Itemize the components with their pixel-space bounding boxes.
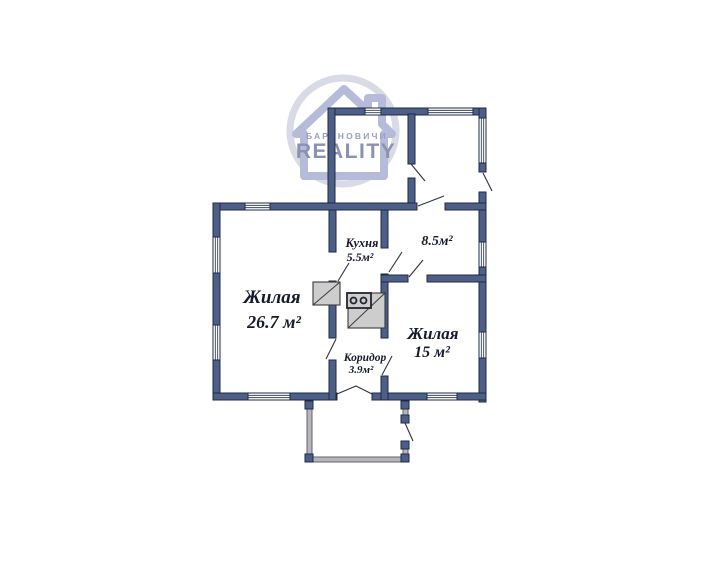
room-kitchen-area: 5.5м² (347, 250, 374, 264)
wall-segment (329, 210, 336, 252)
wall-segment (213, 203, 220, 400)
window (479, 332, 486, 358)
wall-segment (213, 203, 417, 210)
porch-wall-block (305, 401, 313, 409)
burner-icon (361, 298, 367, 304)
wall-segment (381, 376, 388, 400)
room-corridor-name: Коридор (343, 352, 387, 364)
window (428, 108, 473, 115)
window (213, 325, 220, 360)
kitchen-label-leader (338, 263, 349, 281)
door-swing-line (483, 173, 492, 191)
room-living2-name: Жилая (406, 324, 458, 343)
door-swing-line (409, 260, 423, 277)
watermark-logo: БАРАНОВИЧИ REALITY (290, 78, 396, 184)
porch-door-jamb (401, 441, 409, 449)
floor-plan-drawing: БАРАНОВИЧИ REALITY (0, 0, 720, 561)
window (213, 237, 220, 273)
double-door-swing-line (337, 386, 372, 394)
floor-plan-canvas: БАРАНОВИЧИ REALITY (0, 0, 720, 561)
door-swing-line (405, 423, 413, 441)
porch-wall-segment (307, 457, 408, 462)
porch-door-jamb (401, 415, 409, 423)
porch-wall-segment (307, 401, 312, 462)
porch-wall-block (401, 454, 409, 462)
porch-walls (305, 401, 409, 462)
stove-box (347, 293, 385, 328)
window (427, 393, 457, 400)
room-85-area: 8.5м² (421, 234, 453, 249)
room-living1-area: 26.7 м² (246, 312, 301, 332)
window (248, 393, 290, 400)
door-swing-line (326, 339, 336, 359)
wall-segment (445, 203, 486, 210)
wall-segment (329, 360, 336, 400)
wall-segment (408, 114, 415, 164)
wall-segment (381, 275, 408, 282)
logo-brand-text: REALITY (296, 140, 396, 163)
door-swing-line (389, 252, 402, 272)
room-corridor-area: 3.9м² (348, 364, 374, 376)
window (479, 118, 486, 163)
porch-wall-block (305, 454, 313, 462)
porch-wall-block (401, 401, 409, 409)
window (479, 242, 486, 267)
wall-segment (427, 275, 486, 282)
wall-segment (328, 108, 335, 210)
burner-icon (351, 298, 357, 304)
room-living2-area: 15 м² (414, 344, 451, 361)
room-living1-name: Жилая (241, 287, 300, 308)
wall-segment (381, 210, 388, 248)
window (365, 108, 381, 115)
stove-box (313, 282, 340, 305)
wall-segment (479, 192, 486, 402)
window (245, 203, 270, 210)
door-swing-line (418, 196, 444, 206)
stoves (313, 282, 385, 328)
room-kitchen-name: Кухня (345, 236, 380, 250)
